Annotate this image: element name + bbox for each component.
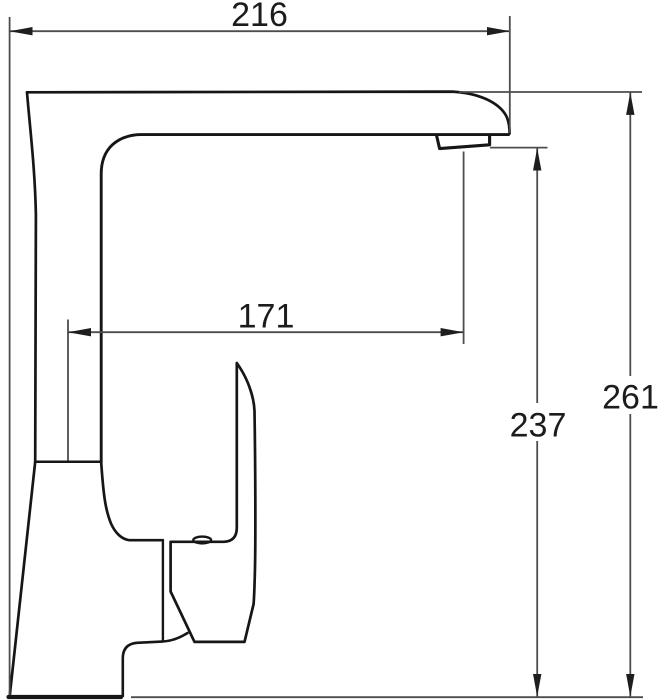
svg-text:171: 171 bbox=[238, 298, 295, 336]
svg-text:216: 216 bbox=[231, 0, 288, 34]
svg-text:261: 261 bbox=[602, 379, 659, 417]
svg-text:237: 237 bbox=[510, 407, 567, 445]
